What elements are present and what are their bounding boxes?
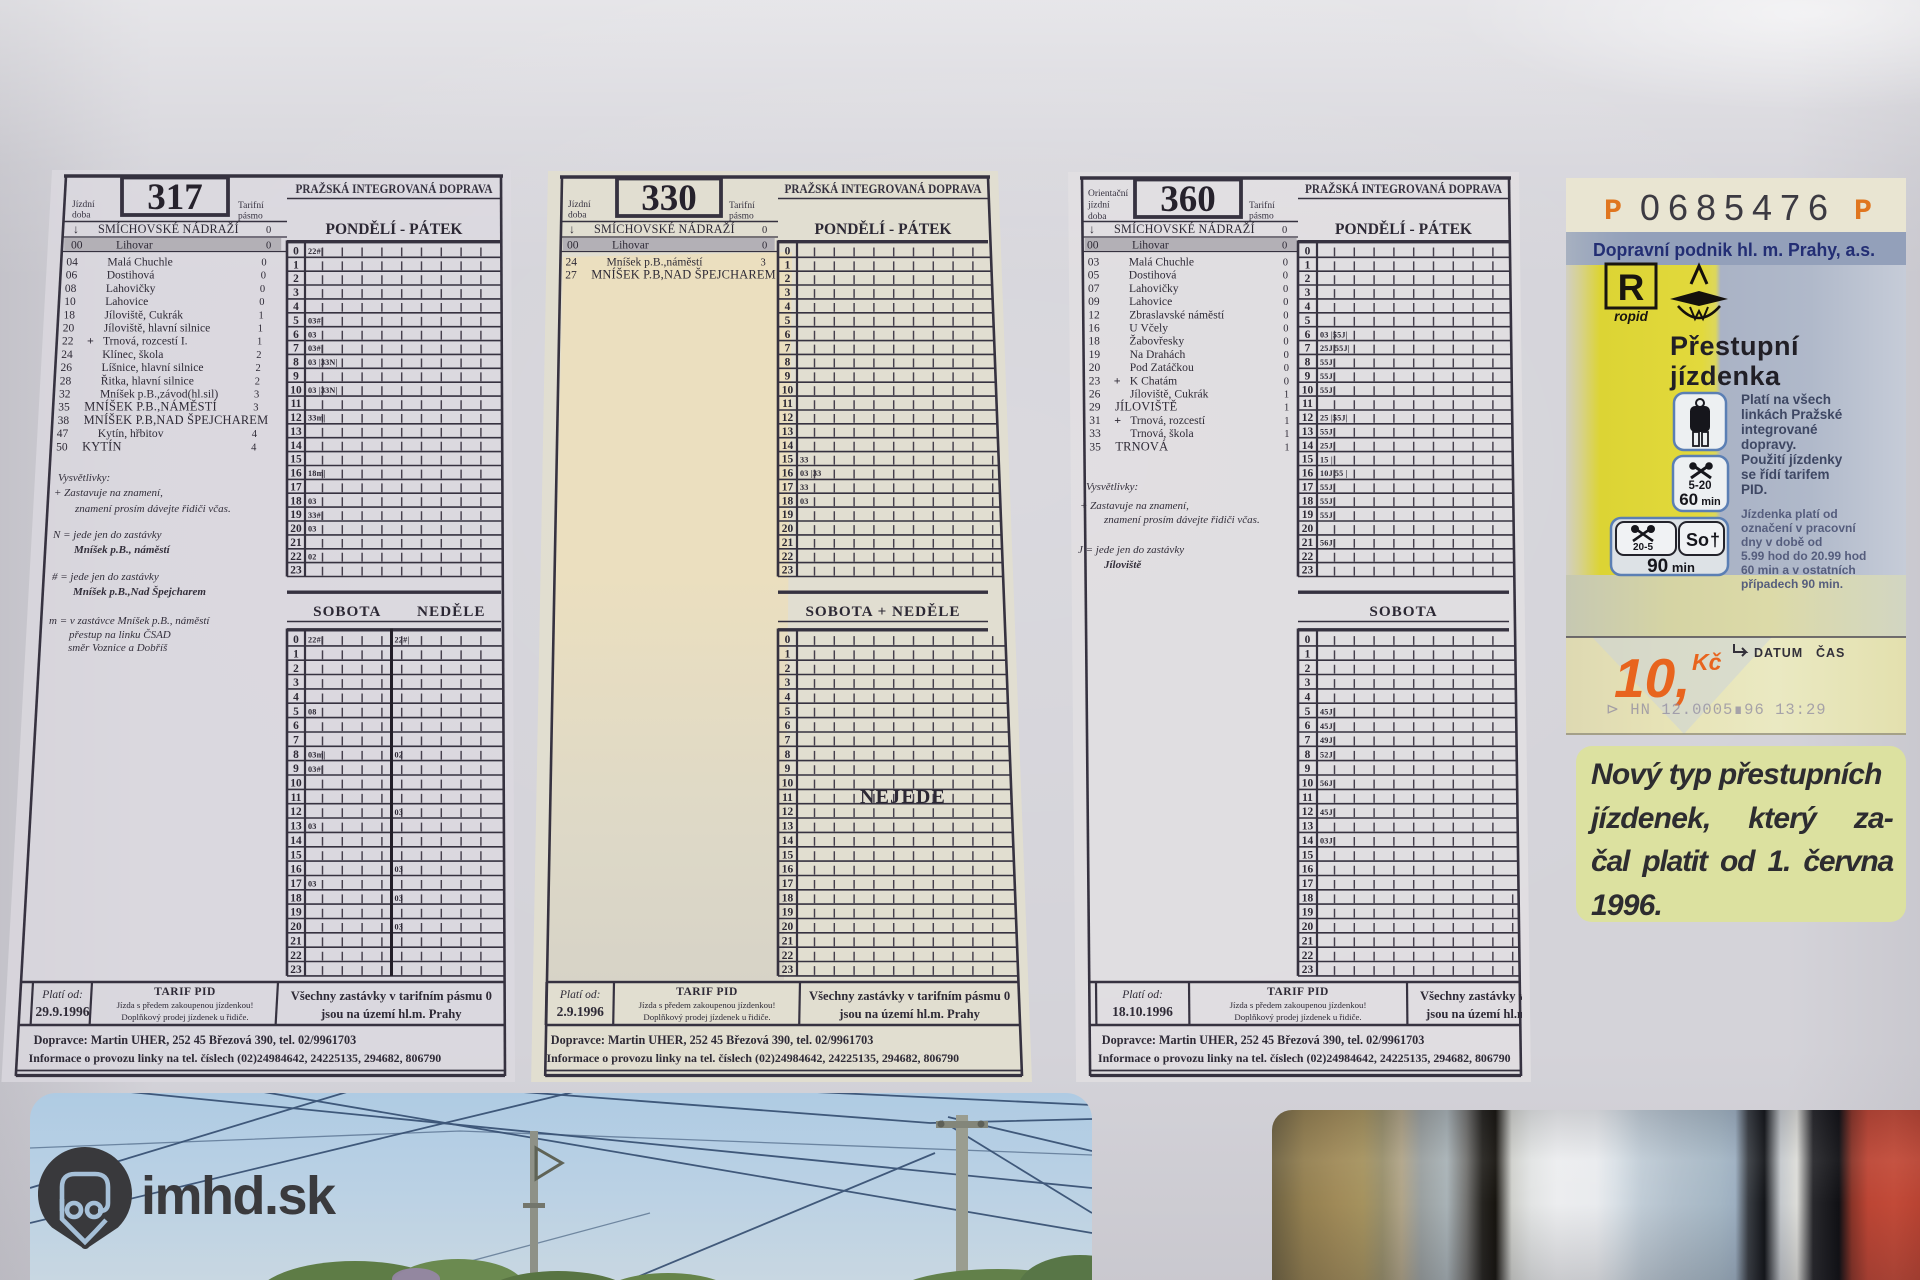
svg-text:1: 1 xyxy=(293,648,299,660)
svg-text:55J|: 55J| xyxy=(1320,386,1335,395)
svg-text:11: 11 xyxy=(291,792,302,804)
svg-text:18: 18 xyxy=(1302,495,1314,507)
svg-text:35: 35 xyxy=(1089,441,1101,453)
svg-text:0: 0 xyxy=(1283,310,1288,321)
svg-text:08: 08 xyxy=(308,707,317,716)
svg-text:3: 3 xyxy=(785,287,791,299)
svg-text:1: 1 xyxy=(785,259,791,271)
svg-text:K Chatám: K Chatám xyxy=(1130,374,1177,387)
svg-text:12: 12 xyxy=(1302,806,1314,818)
svg-text:ropid: ropid xyxy=(1614,309,1648,324)
svg-text:15: 15 xyxy=(290,454,302,466)
svg-text:0: 0 xyxy=(1284,363,1289,374)
svg-text:3: 3 xyxy=(1305,677,1311,689)
svg-text:0: 0 xyxy=(1284,376,1289,387)
svg-text:PRAŽSKÁ INTEGROVANÁ DOPRAVA: PRAŽSKÁ INTEGROVANÁ DOPRAVA xyxy=(296,182,494,196)
svg-text:22#|: 22#| xyxy=(308,636,323,645)
svg-text:50: 50 xyxy=(56,441,68,453)
svg-text:23: 23 xyxy=(1089,375,1101,387)
svg-text:Jízdní: Jízdní xyxy=(568,200,591,210)
svg-text:0: 0 xyxy=(1283,337,1288,348)
svg-text:16: 16 xyxy=(1302,864,1314,876)
svg-text:TRNOVÁ: TRNOVÁ xyxy=(1115,439,1168,453)
svg-text:7: 7 xyxy=(785,735,791,747)
svg-text:1: 1 xyxy=(1284,429,1289,440)
svg-text:# = jede jen do zastávky: # = jede jen do zastávky xyxy=(52,571,159,583)
svg-text:MNÍŠEK P.B.,NÁMĚSTÍ: MNÍŠEK P.B.,NÁMĚSTÍ xyxy=(84,400,217,414)
svg-text:23: 23 xyxy=(1302,565,1314,577)
svg-text:Lahovičky: Lahovičky xyxy=(1129,282,1179,295)
svg-text:03: 03 xyxy=(308,497,317,506)
svg-text:03 |33N|: 03 |33N| xyxy=(308,386,338,395)
svg-text:19: 19 xyxy=(290,509,302,521)
svg-text:13: 13 xyxy=(782,821,794,833)
svg-text:pásmo: pásmo xyxy=(1249,212,1274,222)
svg-text:22: 22 xyxy=(290,551,302,563)
svg-text:18: 18 xyxy=(290,892,302,904)
svg-text:16: 16 xyxy=(290,468,302,480)
svg-text:Jíloviště, Cukrák: Jíloviště, Cukrák xyxy=(1130,388,1209,401)
svg-text:16: 16 xyxy=(782,468,794,480)
svg-text:jsou na území hl.m. Prahy: jsou na území hl.m. Prahy xyxy=(320,1007,462,1021)
svg-text:6: 6 xyxy=(785,720,791,732)
svg-text:+: + xyxy=(1114,373,1121,387)
svg-text:Doplňkový prodej jízdenek u ři: Doplňkový prodej jízdenek u řidiče. xyxy=(643,1012,770,1022)
svg-text:9: 9 xyxy=(293,763,299,775)
svg-text:MNÍŠEK P.B,NAD ŠPEJCHAREM: MNÍŠEK P.B,NAD ŠPEJCHAREM xyxy=(591,268,776,282)
svg-text:Všechny zastávky v tarifním pá: Všechny zastávky v tarifním pásmu 0 xyxy=(809,989,1010,1003)
svg-text:14: 14 xyxy=(1302,440,1314,452)
svg-text:↓: ↓ xyxy=(73,222,79,236)
svg-text:3: 3 xyxy=(293,677,299,689)
svg-text:+ Zastavuje na znamení,: + Zastavuje na znamení, xyxy=(54,487,163,499)
svg-text:Malá Chuchle: Malá Chuchle xyxy=(1129,256,1194,269)
svg-text:05: 05 xyxy=(1088,270,1100,282)
svg-text:22: 22 xyxy=(1302,551,1314,563)
svg-text:SMÍCHOVSKÉ NÁDRAŽÍ: SMÍCHOVSKÉ NÁDRAŽÍ xyxy=(1114,222,1255,236)
svg-text:JÍLOVIŠTĚ: JÍLOVIŠTĚ xyxy=(1115,400,1177,414)
svg-text:49J|: 49J| xyxy=(1320,736,1335,745)
svg-text:06: 06 xyxy=(66,270,78,282)
svg-text:Tarifní: Tarifní xyxy=(238,200,264,211)
svg-text:5: 5 xyxy=(1305,315,1311,327)
svg-text:1: 1 xyxy=(258,324,263,335)
svg-text:03: 03 xyxy=(308,525,317,534)
svg-text:0: 0 xyxy=(1284,350,1289,361)
svg-text:0: 0 xyxy=(1283,284,1288,295)
svg-text:23: 23 xyxy=(1302,964,1314,976)
svg-text:330: 330 xyxy=(641,178,697,219)
svg-text:jízdní: jízdní xyxy=(1087,201,1110,211)
svg-text:22: 22 xyxy=(1302,950,1314,962)
svg-text:Klínec, škola: Klínec, škola xyxy=(102,348,163,361)
svg-text:4: 4 xyxy=(293,692,299,704)
svg-text:doba: doba xyxy=(568,211,587,221)
svg-text:0: 0 xyxy=(1305,634,1311,646)
svg-text:integrované: integrované xyxy=(1741,422,1818,437)
svg-text:15: 15 xyxy=(1302,454,1314,466)
svg-text:Líšnice, hlavní silnice: Líšnice, hlavní silnice xyxy=(102,361,204,374)
svg-text:případech 90 min.: případech 90 min. xyxy=(1741,577,1843,591)
svg-text:↓: ↓ xyxy=(569,222,575,236)
svg-text:17: 17 xyxy=(290,481,302,493)
svg-text:Lahovičky: Lahovičky xyxy=(106,282,156,295)
svg-text:55J|: 55J| xyxy=(1320,511,1335,520)
svg-text:Na Drahách: Na Drahách xyxy=(1130,348,1186,361)
svg-text:18: 18 xyxy=(1088,336,1100,348)
svg-text:0: 0 xyxy=(261,258,266,269)
svg-text:20: 20 xyxy=(290,921,302,933)
svg-text:+: + xyxy=(1114,413,1121,427)
svg-text:18: 18 xyxy=(782,892,794,904)
svg-text:07: 07 xyxy=(1088,283,1100,295)
svg-text:55J|: 55J| xyxy=(1320,358,1335,367)
svg-text:4: 4 xyxy=(252,429,258,440)
svg-text:21: 21 xyxy=(782,537,794,549)
svg-text:10: 10 xyxy=(1302,778,1314,790)
svg-text:11: 11 xyxy=(1302,398,1313,410)
svg-text:08: 08 xyxy=(65,283,77,295)
svg-text:Jízdenka platí od: Jízdenka platí od xyxy=(1741,507,1838,521)
svg-text:9: 9 xyxy=(785,763,791,775)
svg-text:10: 10 xyxy=(782,778,794,790)
svg-text:doba: doba xyxy=(1088,212,1107,222)
svg-text:PONDĚLÍ - PÁTEK: PONDĚLÍ - PÁTEK xyxy=(326,221,463,238)
svg-text:16: 16 xyxy=(1088,323,1100,335)
svg-text:3: 3 xyxy=(785,677,791,689)
svg-text:Platí od:: Platí od: xyxy=(41,989,83,1001)
svg-text:21: 21 xyxy=(1302,935,1314,947)
svg-text:09: 09 xyxy=(1088,296,1100,308)
svg-text:pásmo: pásmo xyxy=(729,212,754,222)
svg-text:pásmo: pásmo xyxy=(238,212,263,222)
svg-text:se řídí tarifem: se řídí tarifem xyxy=(1741,467,1830,482)
svg-text:R: R xyxy=(1618,267,1645,308)
svg-text:⊳ HN 12.0005∎96 13:29: ⊳ HN 12.0005∎96 13:29 xyxy=(1606,701,1827,719)
svg-text:znamení prosím dávejte řidiči: znamení prosím dávejte řidiči včas. xyxy=(1103,514,1260,526)
svg-text:10: 10 xyxy=(1302,384,1314,396)
svg-text:1: 1 xyxy=(1284,416,1289,427)
svg-text:PID.: PID. xyxy=(1741,482,1767,497)
svg-text:Jíloviště, hlavní silnice: Jíloviště, hlavní silnice xyxy=(104,322,211,335)
svg-text:Informace o provozu linky na t: Informace o provozu linky na tel. číslec… xyxy=(1098,1051,1511,1065)
svg-text:6: 6 xyxy=(785,329,791,341)
svg-text:13: 13 xyxy=(1302,821,1314,833)
svg-text:03#|: 03#| xyxy=(308,317,323,326)
svg-text:2: 2 xyxy=(1305,273,1311,285)
svg-text:14: 14 xyxy=(782,440,794,452)
svg-text:03J|: 03J| xyxy=(1320,837,1335,846)
svg-text:14: 14 xyxy=(290,835,302,847)
svg-text:18.10.1996: 18.10.1996 xyxy=(1112,1004,1173,1019)
svg-text:13: 13 xyxy=(290,821,302,833)
svg-text:21: 21 xyxy=(290,537,302,549)
svg-text:Žabovřesky: Žabovřesky xyxy=(1129,334,1184,348)
svg-text:5: 5 xyxy=(785,315,791,327)
svg-text:02: 02 xyxy=(395,750,404,759)
svg-text:13: 13 xyxy=(290,426,302,438)
svg-text:03: 03 xyxy=(395,894,404,903)
svg-text:5: 5 xyxy=(785,706,791,718)
svg-text:0: 0 xyxy=(785,246,791,258)
svg-text:18: 18 xyxy=(782,495,794,507)
svg-text:20: 20 xyxy=(782,921,794,933)
svg-text:12: 12 xyxy=(1088,309,1100,321)
svg-text:7: 7 xyxy=(1305,343,1311,355)
svg-text:20: 20 xyxy=(782,523,794,535)
svg-text:KYTÍN: KYTÍN xyxy=(82,439,122,453)
svg-text:jsou na území hl.m. Prahy: jsou na území hl.m. Prahy xyxy=(838,1007,980,1021)
svg-text:Vysvětlivky:: Vysvětlivky: xyxy=(58,472,110,484)
svg-text:Mníšek p.B.,závod(hl.sil): Mníšek p.B.,závod(hl.sil) xyxy=(100,388,218,401)
svg-text:+ Zastavuje na znamení,: + Zastavuje na znamení, xyxy=(1080,500,1189,512)
svg-text:2: 2 xyxy=(293,273,299,285)
svg-text:směr Voznice a Dobříš: směr Voznice a Dobříš xyxy=(68,642,168,654)
svg-text:20-5: 20-5 xyxy=(1633,542,1653,553)
svg-text:0: 0 xyxy=(259,297,264,308)
svg-text:21: 21 xyxy=(1302,537,1314,549)
svg-text:29.9.1996: 29.9.1996 xyxy=(36,1004,90,1019)
svg-text:1: 1 xyxy=(257,337,262,348)
svg-text:15 |: 15 | xyxy=(1320,455,1333,464)
svg-text:SOBOTA + NEDĚLE: SOBOTA + NEDĚLE xyxy=(805,603,960,620)
svg-text:25J|: 25J| xyxy=(1320,441,1335,450)
svg-text:33: 33 xyxy=(800,455,809,464)
svg-text:Zbraslavské náměstí: Zbraslavské náměstí xyxy=(1129,308,1225,321)
svg-text:3: 3 xyxy=(254,390,259,401)
svg-text:29: 29 xyxy=(1089,402,1101,414)
svg-text:Mníšek p.B.,Nad Špejcharem: Mníšek p.B.,Nad Špejcharem xyxy=(72,585,206,598)
svg-text:317: 317 xyxy=(147,177,203,218)
svg-text:Trnová, rozcestí: Trnová, rozcestí xyxy=(1130,414,1206,427)
svg-text:doba: doba xyxy=(72,211,91,221)
svg-text:17: 17 xyxy=(782,878,794,890)
svg-text:28: 28 xyxy=(60,375,72,387)
svg-text:1: 1 xyxy=(1305,259,1311,271)
svg-text:imhd.sk: imhd.sk xyxy=(141,1166,337,1226)
svg-text:0: 0 xyxy=(266,241,271,252)
svg-text:03: 03 xyxy=(308,330,317,339)
svg-text:6: 6 xyxy=(293,720,299,732)
svg-text:0: 0 xyxy=(261,271,266,282)
svg-text:25 |55J|: 25 |55J| xyxy=(1320,414,1348,423)
svg-text:23: 23 xyxy=(782,565,794,577)
svg-text:14: 14 xyxy=(782,835,794,847)
svg-text:22: 22 xyxy=(782,551,794,563)
svg-text:2: 2 xyxy=(255,376,260,387)
svg-text:Lahovice: Lahovice xyxy=(105,295,148,308)
svg-text:9: 9 xyxy=(293,370,299,382)
svg-text:7: 7 xyxy=(785,343,791,355)
svg-text:03: 03 xyxy=(1088,257,1100,269)
svg-text:0: 0 xyxy=(260,284,265,295)
svg-text:360: 360 xyxy=(1160,179,1216,220)
svg-text:přestup na linku ČSAD: přestup na linku ČSAD xyxy=(68,629,171,641)
svg-text:33m|: 33m| xyxy=(308,414,326,423)
svg-text:00: 00 xyxy=(567,239,579,252)
svg-text:Lahovice: Lahovice xyxy=(1129,295,1172,308)
svg-text:DATUM: DATUM xyxy=(1754,646,1803,660)
svg-text:1: 1 xyxy=(1284,390,1289,401)
svg-text:Všechny zastávky v tarifním pá: Všechny zastávky v tarifním pásmu 0 xyxy=(1420,989,1621,1003)
svg-text:25J|55J|: 25J|55J| xyxy=(1320,344,1350,353)
svg-text:6: 6 xyxy=(293,329,299,341)
svg-text:Doplňkový prodej jízdenek u ři: Doplňkový prodej jízdenek u řidiče. xyxy=(121,1012,248,1022)
svg-text:jsou na území hl.m. Prahy: jsou na území hl.m. Prahy xyxy=(1425,1007,1567,1021)
svg-text:Dopravce: Martin UHER, 252 45: Dopravce: Martin UHER, 252 45 Březová 39… xyxy=(551,1033,874,1047)
svg-text:Malá Chuchle: Malá Chuchle xyxy=(107,256,172,269)
svg-text:03: 03 xyxy=(308,822,317,831)
svg-text:0685476: 0685476 xyxy=(1640,187,1836,228)
svg-text:35: 35 xyxy=(58,402,70,414)
svg-text:55J|: 55J| xyxy=(1320,483,1335,492)
svg-text:18: 18 xyxy=(64,309,76,321)
svg-text:10: 10 xyxy=(64,296,76,308)
svg-text:1: 1 xyxy=(293,259,299,271)
svg-text:17: 17 xyxy=(1302,878,1314,890)
svg-text:Dostihová: Dostihová xyxy=(1129,269,1177,282)
svg-text:4: 4 xyxy=(1305,301,1311,313)
svg-text:12: 12 xyxy=(290,412,302,424)
svg-text:1: 1 xyxy=(785,648,791,660)
svg-text:Trnová, rozcestí I.: Trnová, rozcestí I. xyxy=(103,335,188,348)
svg-text:5: 5 xyxy=(1305,706,1311,718)
svg-text:PONDĚLÍ - PÁTEK: PONDĚLÍ - PÁTEK xyxy=(1335,221,1472,238)
svg-text:45J|: 45J| xyxy=(1320,722,1335,731)
svg-text:Jíloviště: Jíloviště xyxy=(1103,559,1142,571)
svg-text:11: 11 xyxy=(1302,792,1313,804)
svg-text:Tarifní: Tarifní xyxy=(729,200,755,211)
svg-text:24: 24 xyxy=(566,257,578,269)
svg-text:4: 4 xyxy=(1305,692,1311,704)
svg-text:33: 33 xyxy=(1089,428,1101,440)
svg-text:1: 1 xyxy=(1284,442,1289,453)
svg-text:27: 27 xyxy=(565,270,577,282)
svg-text:16: 16 xyxy=(290,864,302,876)
svg-text:4: 4 xyxy=(785,301,791,313)
svg-text:21: 21 xyxy=(290,935,302,947)
svg-text:03m|: 03m| xyxy=(308,750,326,759)
svg-text:PONDĚLÍ - PÁTEK: PONDĚLÍ - PÁTEK xyxy=(815,221,952,238)
svg-text:0: 0 xyxy=(785,634,791,646)
svg-text:7: 7 xyxy=(1305,735,1311,747)
svg-text:2: 2 xyxy=(293,663,299,675)
svg-text:NEJEDE: NEJEDE xyxy=(860,786,946,808)
svg-text:15: 15 xyxy=(782,849,794,861)
svg-text:9: 9 xyxy=(1305,763,1311,775)
svg-text:17: 17 xyxy=(782,481,794,493)
svg-text:33: 33 xyxy=(800,483,809,492)
svg-text:33#|: 33#| xyxy=(308,511,323,520)
svg-text:2: 2 xyxy=(785,663,791,675)
svg-text:11: 11 xyxy=(782,398,793,410)
svg-text:N = jede jen do zastávky: N = jede jen do zastávky xyxy=(52,529,162,541)
svg-text:23: 23 xyxy=(782,964,794,976)
svg-text:SOBOTA: SOBOTA xyxy=(1369,603,1437,620)
svg-text:8: 8 xyxy=(785,357,791,369)
svg-text:23: 23 xyxy=(290,565,302,577)
svg-text:19: 19 xyxy=(1302,509,1314,521)
svg-text:Jízdní: Jízdní xyxy=(72,200,95,210)
svg-text:Doplňkový prodej jízdenek u ři: Doplňkový prodej jízdenek u řidiče. xyxy=(1234,1012,1361,1022)
svg-text:6: 6 xyxy=(1305,720,1311,732)
svg-text:22: 22 xyxy=(782,950,794,962)
svg-text:56J|: 56J| xyxy=(1320,539,1335,548)
svg-text:02: 02 xyxy=(308,552,317,561)
svg-text:SMÍCHOVSKÉ NÁDRAŽÍ: SMÍCHOVSKÉ NÁDRAŽÍ xyxy=(594,222,735,236)
svg-text:MNÍŠEK P.B,NAD ŠPEJCHAREM: MNÍŠEK P.B,NAD ŠPEJCHAREM xyxy=(84,413,269,427)
svg-text:03 |55J|: 03 |55J| xyxy=(1320,330,1348,339)
svg-text:Kč: Kč xyxy=(1692,649,1722,675)
svg-text:03 |33N|: 03 |33N| xyxy=(308,358,338,367)
svg-text:Vysvětlivky:: Vysvětlivky: xyxy=(1086,481,1138,493)
svg-text:14: 14 xyxy=(1302,835,1314,847)
svg-text:18: 18 xyxy=(290,495,302,507)
svg-text:45J|: 45J| xyxy=(1320,707,1335,716)
svg-text:Dopravce: Martin UHER, 252 45: Dopravce: Martin UHER, 252 45 Březová 39… xyxy=(34,1033,357,1047)
svg-text:Platí od:: Platí od: xyxy=(1121,989,1163,1001)
svg-text:↓: ↓ xyxy=(1089,222,1095,236)
svg-text:20: 20 xyxy=(1302,921,1314,933)
svg-text:m = v zastávce Mníšek p.B., ná: m = v zastávce Mníšek p.B., náměstí xyxy=(49,615,210,627)
svg-text:Mníšek p.B., náměstí: Mníšek p.B., náměstí xyxy=(73,544,171,556)
svg-text:8: 8 xyxy=(1305,357,1311,369)
svg-text:J = jede jen do zastávky: J = jede jen do zastávky xyxy=(1078,544,1184,556)
svg-text:Jízda s předem zakoupenou jízd: Jízda s předem zakoupenou jízdenkou! xyxy=(117,1000,254,1010)
svg-text:Lihovar: Lihovar xyxy=(116,239,153,252)
svg-text:19: 19 xyxy=(290,907,302,919)
svg-text:PRAŽSKÁ INTEGROVANÁ DOPRAVA: PRAŽSKÁ INTEGROVANÁ DOPRAVA xyxy=(1305,182,1503,196)
svg-text:linkách Pražské: linkách Pražské xyxy=(1741,407,1843,422)
svg-text:4: 4 xyxy=(293,301,299,313)
svg-text:2: 2 xyxy=(256,363,261,374)
svg-text:Mníšek p.B.,náměstí: Mníšek p.B.,náměstí xyxy=(607,256,704,269)
svg-text:15: 15 xyxy=(1302,849,1314,861)
svg-text:Lihovar: Lihovar xyxy=(1132,239,1169,252)
svg-text:9: 9 xyxy=(1305,370,1311,382)
svg-text:†: † xyxy=(1710,530,1720,550)
svg-text:20: 20 xyxy=(290,523,302,535)
svg-text:00: 00 xyxy=(1087,239,1099,252)
svg-text:0: 0 xyxy=(762,225,767,236)
svg-text:5: 5 xyxy=(293,706,299,718)
svg-text:Všechny zastávky v tarifním pá: Všechny zastávky v tarifním pásmu 0 xyxy=(291,989,492,1003)
svg-text:0: 0 xyxy=(1282,225,1287,236)
svg-text:38: 38 xyxy=(58,415,70,427)
svg-text:9: 9 xyxy=(785,370,791,382)
svg-text:12: 12 xyxy=(1302,412,1314,424)
svg-text:TARIF PID: TARIF PID xyxy=(154,986,216,998)
svg-text:dny v době od: dny v době od xyxy=(1741,535,1822,549)
svg-text:32: 32 xyxy=(59,389,71,401)
svg-text:Tarifní: Tarifní xyxy=(1249,200,1275,211)
svg-text:5: 5 xyxy=(293,315,299,327)
svg-text:10: 10 xyxy=(290,778,302,790)
svg-text:2: 2 xyxy=(256,350,261,361)
svg-text:Dostihová: Dostihová xyxy=(107,269,155,282)
svg-text:60 min a v ostatních: 60 min a v ostatních xyxy=(1741,563,1856,577)
svg-text:Platí od:: Platí od: xyxy=(559,989,601,1001)
svg-text:20: 20 xyxy=(1089,362,1101,374)
svg-text:Dopravní podnik hl. m. Prahy,: Dopravní podnik hl. m. Prahy, a.s. xyxy=(1593,239,1875,260)
svg-text:19: 19 xyxy=(1302,907,1314,919)
svg-text:+: + xyxy=(87,334,94,348)
svg-text:26: 26 xyxy=(61,362,73,374)
svg-text:16: 16 xyxy=(782,864,794,876)
svg-text:17: 17 xyxy=(290,878,302,890)
svg-text:26: 26 xyxy=(1089,389,1101,401)
svg-text:0: 0 xyxy=(1283,297,1288,308)
